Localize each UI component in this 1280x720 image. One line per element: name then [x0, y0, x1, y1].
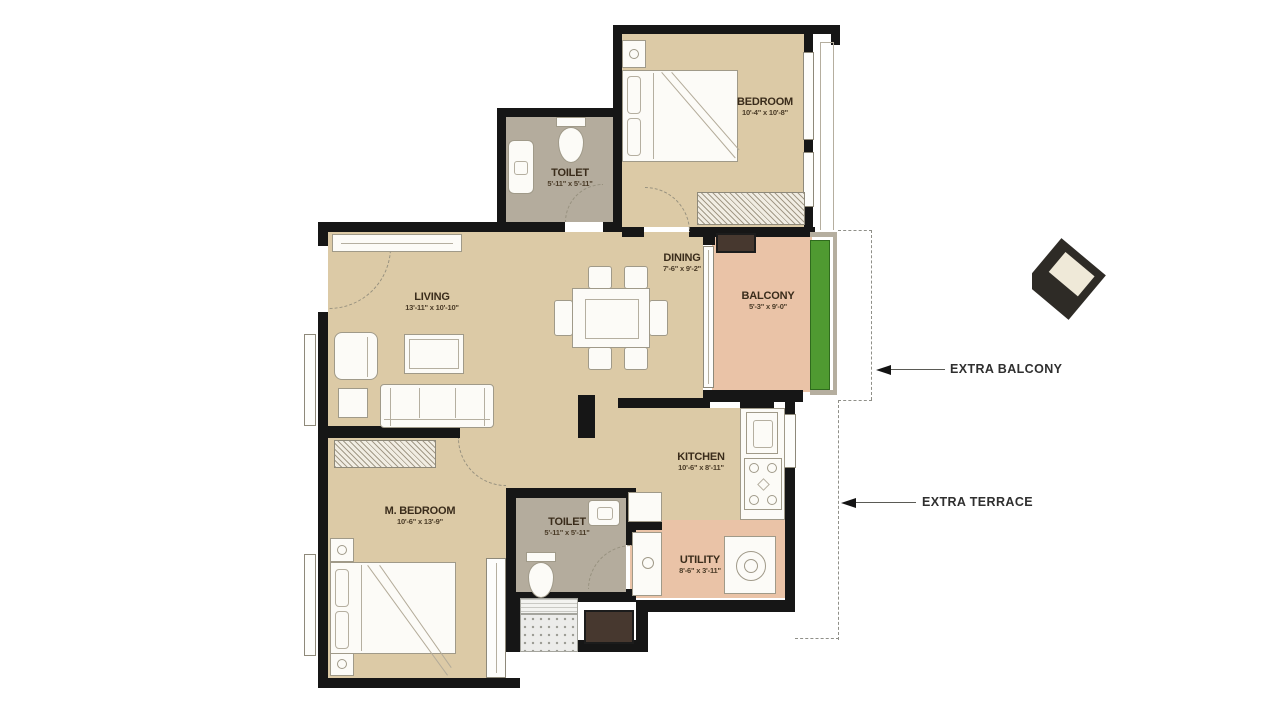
leader-line — [856, 502, 916, 503]
stair-treads — [520, 598, 578, 614]
kitchen-cabinet — [628, 492, 662, 522]
extra-balcony-boundary — [838, 400, 872, 401]
balcony-edge — [810, 390, 837, 395]
dining-chair — [588, 266, 612, 289]
wardrobe — [334, 440, 436, 468]
wall-segment — [506, 488, 516, 600]
wall-segment — [318, 222, 328, 246]
parapet-line — [820, 42, 821, 230]
dining-chair — [624, 347, 648, 370]
wall-segment — [318, 678, 520, 688]
wc-tank — [526, 552, 556, 562]
cupboard — [486, 558, 506, 678]
wall-segment — [645, 600, 795, 612]
window — [304, 554, 316, 656]
extra-balcony-boundary — [871, 230, 872, 400]
dining-chair — [649, 300, 668, 336]
wall-segment — [703, 390, 803, 402]
room-label-bedroom: BEDROOM 10'-4" x 10'-8" — [703, 97, 827, 116]
room-label-toilet1: TOILET 5'-11" x 5'-11" — [508, 168, 632, 187]
console-table — [332, 234, 462, 252]
extra-balcony-boundary — [838, 230, 872, 231]
side-table — [338, 388, 368, 418]
kitchen-sink — [746, 412, 778, 454]
wardrobe — [697, 192, 805, 225]
wall-segment — [603, 222, 622, 232]
room-label-balcony: BALCONY 5'-3" x 9'-0" — [706, 291, 830, 310]
wall-segment — [497, 108, 622, 117]
double-bed — [330, 562, 456, 654]
wall-segment — [497, 108, 506, 232]
wall-segment — [613, 25, 622, 117]
decor-tilted-square-icon — [1032, 238, 1106, 320]
wall-segment — [804, 140, 813, 152]
nightstand — [622, 40, 646, 68]
dining-table — [572, 288, 650, 348]
leader-arrow — [876, 365, 891, 375]
floor-plan-canvas: EXTRA BALCONY EXTRA TERRACE BEDROOM 10'-… — [0, 0, 1280, 720]
extra-terrace-boundary — [795, 638, 839, 639]
room-label-utility: UTILITY 8'-6" x 3'-11" — [638, 555, 762, 574]
dining-chair — [554, 300, 573, 336]
coffee-table — [404, 334, 464, 374]
wall-segment — [506, 592, 520, 652]
room-label-kitchen: KITCHEN 10'-6" x 8'-11" — [639, 452, 763, 471]
wall-segment — [622, 227, 644, 237]
wall-segment — [785, 520, 795, 612]
leader-line — [891, 369, 945, 370]
dining-chair — [588, 347, 612, 370]
wall-segment — [618, 398, 710, 408]
leader-arrow — [841, 498, 856, 508]
room-label-toilet2: TOILET 5'-11" x 5'-11" — [505, 517, 629, 536]
ac-unit-box — [716, 233, 756, 253]
extra-terrace-boundary — [838, 400, 839, 640]
wall-segment — [506, 488, 636, 498]
extra-balcony-label: EXTRA BALCONY — [950, 362, 1062, 376]
entry-mat-box — [584, 610, 634, 644]
wall-segment — [318, 438, 328, 688]
decor-fragment — [1032, 238, 1107, 328]
nightstand — [330, 652, 354, 676]
wc-tank — [556, 117, 586, 127]
parapet-line — [820, 42, 833, 43]
wall-segment — [318, 312, 328, 438]
armchair — [334, 332, 378, 380]
duct-shaft — [520, 614, 578, 652]
balcony-edge — [810, 232, 837, 237]
wall-segment — [318, 222, 565, 232]
wall-segment — [804, 25, 813, 52]
parapet-line — [833, 42, 834, 230]
room-label-master-bedroom: M. BEDROOM 10'-6" x 13'-9" — [358, 506, 482, 525]
room-label-living: LIVING 13'-11" x 10'-10" — [370, 292, 494, 311]
wall-segment — [703, 227, 715, 245]
wall-segment — [578, 395, 595, 438]
balcony-edge — [833, 237, 837, 393]
window — [803, 52, 814, 140]
sofa — [380, 384, 494, 428]
room-label-dining: DINING 7'-6" x 9'-2" — [620, 253, 744, 272]
nightstand — [330, 538, 354, 562]
window — [304, 334, 316, 426]
planter-strip — [810, 240, 830, 390]
extra-terrace-label: EXTRA TERRACE — [922, 495, 1033, 509]
